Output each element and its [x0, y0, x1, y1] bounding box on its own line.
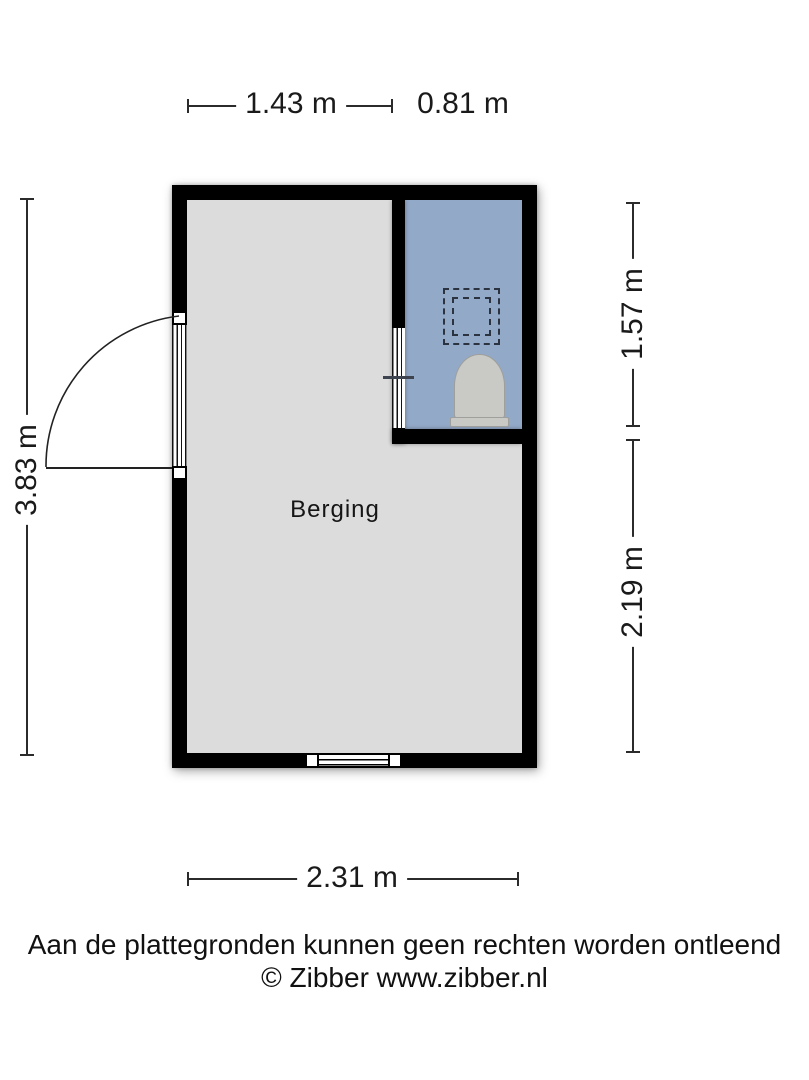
window-jamb-left: [305, 753, 319, 768]
toilet-icon: [454, 354, 505, 420]
entry-door-jamb-bottom: [172, 466, 187, 480]
floorplan-canvas: 1.43 m 0.81 m 3.83 m 1.57 m 2.19 m 2.31 …: [0, 0, 809, 1080]
window-jamb-right: [388, 753, 402, 768]
bathroom-door-tick: [383, 376, 414, 379]
dimension-label-right-lower: 2.19 m: [615, 537, 651, 647]
entry-door-icon: [172, 325, 187, 466]
dimension-label-top-right: 0.81 m: [408, 86, 518, 122]
dimension-tick: [187, 99, 189, 113]
bathroom-wall-bottom: [392, 429, 522, 444]
footer-disclaimer: Aan de plattegronden kunnen geen rechten…: [0, 928, 809, 961]
dimension-tick: [391, 99, 393, 113]
dimension-label-right-upper: 1.57 m: [615, 259, 651, 369]
dimension-label-top-left: 1.43 m: [236, 86, 346, 122]
footer-copyright: © Zibber www.zibber.nl: [0, 961, 809, 994]
skylight-dashed-icon-inner: [452, 297, 491, 336]
dimension-label-bottom: 2.31 m: [297, 860, 407, 896]
dimension-tick: [626, 425, 640, 427]
dimension-tick: [187, 872, 189, 886]
toilet-base: [450, 417, 509, 427]
dimension-label-left: 3.83 m: [9, 415, 45, 525]
room-label: Berging: [290, 496, 380, 524]
window-icon: [319, 753, 388, 768]
dimension-tick: [517, 872, 519, 886]
dimension-tick: [20, 198, 34, 200]
dimension-tick: [626, 439, 640, 441]
dimension-tick: [626, 751, 640, 753]
dimension-tick: [20, 754, 34, 756]
dimension-tick: [626, 202, 640, 204]
entry-door-jamb-top: [172, 311, 187, 325]
